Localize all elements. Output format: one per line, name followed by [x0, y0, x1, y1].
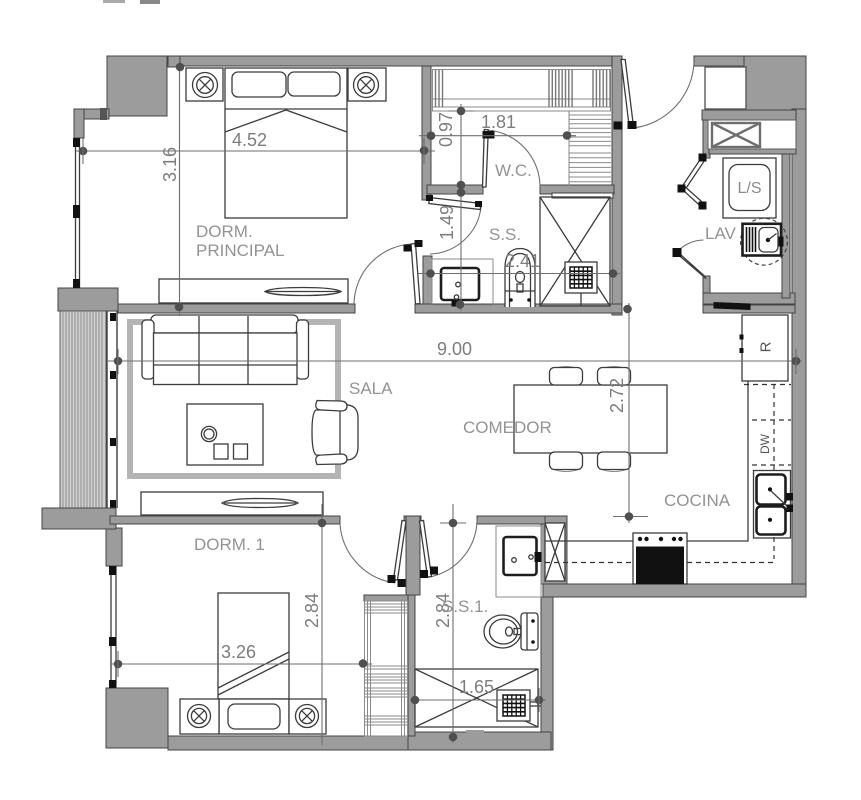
svg-text:2.84: 2.84 [302, 593, 322, 628]
svg-text:3.16: 3.16 [160, 147, 180, 182]
svg-text:DW: DW [758, 433, 772, 454]
svg-text:9.00: 9.00 [437, 339, 472, 359]
svg-text:COMEDOR: COMEDOR [463, 418, 552, 437]
svg-text:1.81: 1.81 [481, 112, 516, 132]
svg-text:1.65: 1.65 [459, 677, 494, 697]
svg-text:R: R [758, 341, 775, 352]
svg-text:DORM.: DORM. [196, 222, 253, 241]
svg-text:LAV: LAV [705, 224, 737, 243]
svg-text:COCINA: COCINA [664, 491, 731, 510]
svg-text:DORM. 1: DORM. 1 [194, 535, 265, 554]
svg-text:S.S.1.: S.S.1. [442, 597, 488, 616]
svg-text:2.72: 2.72 [607, 378, 627, 413]
svg-text:4.52: 4.52 [232, 130, 267, 150]
svg-text:S.S.: S.S. [489, 225, 521, 244]
svg-text:SALA: SALA [349, 379, 393, 398]
svg-text:2.41: 2.41 [505, 251, 540, 271]
svg-text:0.97: 0.97 [436, 112, 456, 147]
svg-text:PRINCIPAL: PRINCIPAL [196, 241, 285, 260]
svg-text:W.C.: W.C. [495, 161, 532, 180]
svg-text:1.49: 1.49 [437, 205, 457, 240]
svg-text:L/S: L/S [737, 180, 761, 197]
svg-text:3.26: 3.26 [221, 642, 256, 662]
